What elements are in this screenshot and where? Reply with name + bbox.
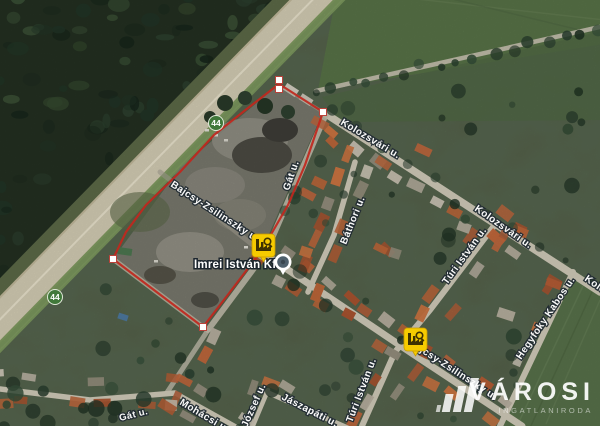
boundary-vertex — [110, 256, 117, 263]
route-44-badge-1: 44 — [209, 116, 224, 131]
poi-label[interactable]: Imrei István Kft — [194, 259, 280, 271]
route-number: 44 — [50, 292, 60, 302]
boundary-vertex — [200, 324, 207, 331]
satellite-map-canvas: Kolozsvári u. Kolozsvári u. Kolozsvári u… — [0, 0, 600, 426]
varosi-tagline-text: INGATLANIRODA — [498, 406, 593, 415]
boundary-vertex — [276, 77, 283, 84]
varosi-brand-text: VÁROSI — [469, 377, 595, 406]
route-44-badge-2: 44 — [48, 290, 63, 305]
boundary-vertex — [320, 109, 327, 116]
route-number: 44 — [211, 118, 221, 128]
satellite-map: Kolozsvári u. Kolozsvári u. Kolozsvári u… — [0, 0, 600, 426]
boundary-vertex — [276, 86, 283, 93]
